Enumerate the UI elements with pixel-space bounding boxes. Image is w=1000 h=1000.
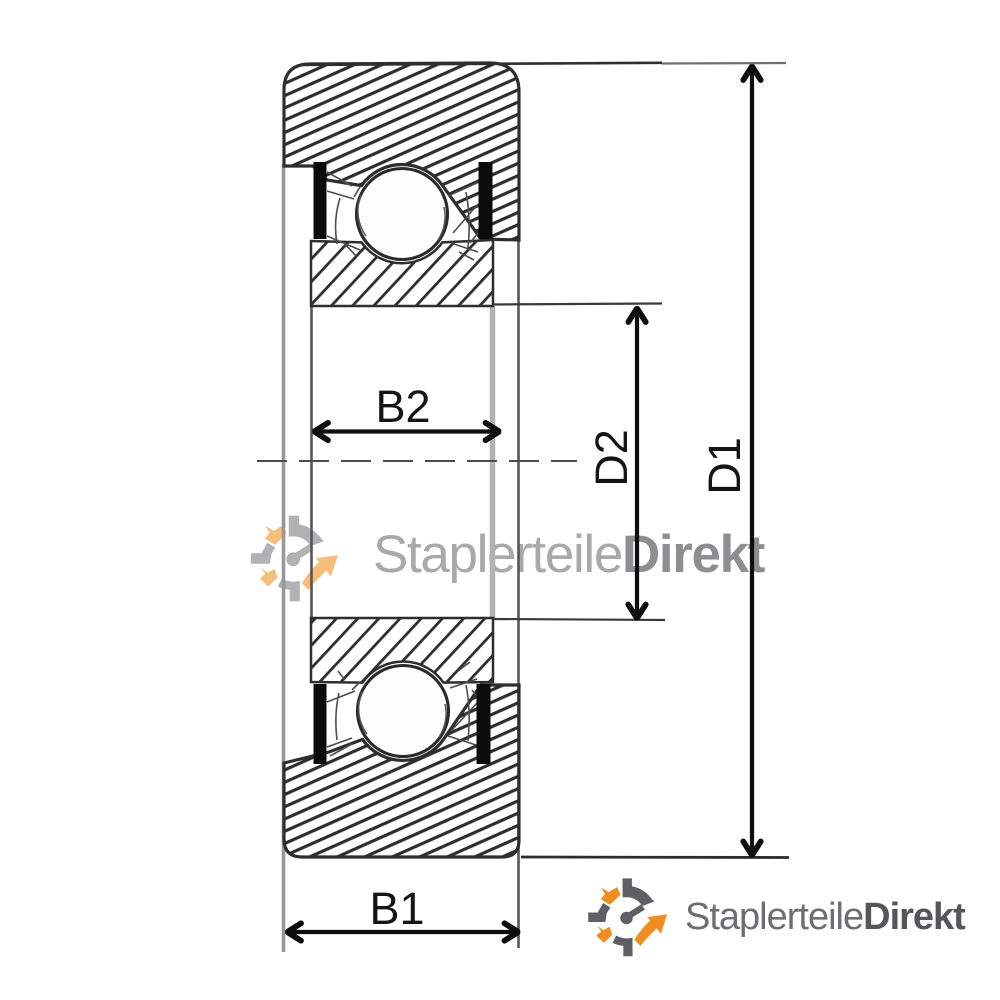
svg-text:StaplerteileDirekt: StaplerteileDirekt [373, 525, 765, 584]
svg-text:StaplerteileDirekt: StaplerteileDirekt [685, 896, 966, 938]
svg-text:B2: B2 [375, 381, 430, 432]
svg-text:B1: B1 [369, 883, 424, 934]
svg-text:D1: D1 [699, 437, 750, 495]
svg-text:D2: D2 [586, 429, 637, 487]
